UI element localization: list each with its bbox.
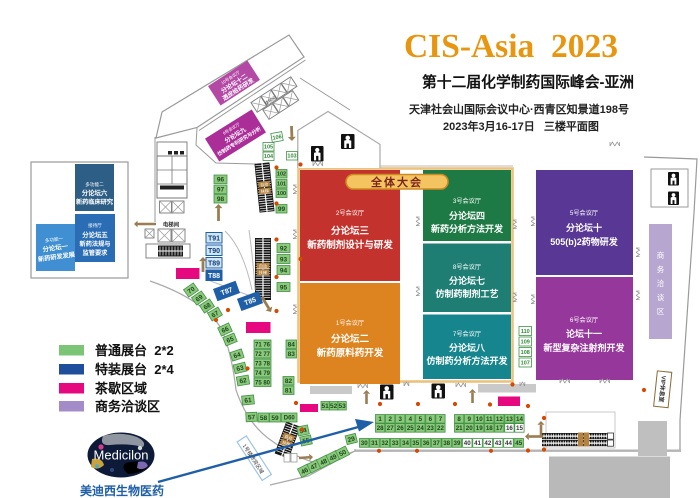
svg-text:2号会议厅: 2号会议厅 (336, 209, 364, 217)
svg-text:25: 25 (407, 425, 414, 432)
svg-text:区: 区 (657, 307, 665, 316)
svg-text:新药法规与: 新药法规与 (80, 240, 111, 248)
svg-text:505(b)2药物研发: 505(b)2药物研发 (550, 236, 619, 247)
svg-text:82: 82 (285, 378, 293, 385)
svg-text:81: 81 (285, 388, 293, 395)
svg-text:51: 51 (322, 403, 330, 410)
svg-text:分论坛七: 分论坛七 (449, 275, 485, 286)
svg-text:72 77: 72 77 (255, 352, 271, 358)
svg-text:7号会议厅: 7号会议厅 (453, 330, 481, 338)
svg-text:83: 83 (288, 351, 296, 358)
svg-text:93: 93 (280, 256, 288, 263)
svg-text:天津社会山国际会议中心·西青区知景道198号: 天津社会山国际会议中心·西青区知景道198号 (409, 102, 629, 116)
svg-text:分论坛四: 分论坛四 (449, 210, 485, 221)
svg-text:13: 13 (506, 416, 513, 423)
svg-text:110: 110 (521, 329, 530, 335)
svg-text:6: 6 (429, 416, 433, 423)
svg-text:新药分析方法开发: 新药分析方法开发 (431, 223, 504, 234)
svg-text:6号会议厅: 6号会议厅 (570, 316, 598, 324)
svg-text:39: 39 (454, 440, 461, 447)
svg-text:自动: 自动 (260, 181, 269, 188)
svg-text:18: 18 (486, 425, 493, 432)
svg-text:分论坛十: 分论坛十 (566, 222, 602, 233)
svg-text:分论坛五: 分论坛五 (82, 230, 108, 239)
svg-text:CIS-Asia 2023: CIS-Asia 2023 (404, 28, 618, 65)
svg-text:109: 109 (521, 339, 530, 345)
svg-text:40: 40 (464, 440, 471, 447)
svg-text:Medicilon: Medicilon (94, 448, 149, 463)
svg-text:24: 24 (417, 425, 424, 432)
svg-text:美迪西生物医药: 美迪西生物医药 (80, 483, 164, 498)
svg-text:22: 22 (437, 425, 444, 432)
svg-text:32: 32 (381, 440, 388, 447)
svg-text:19: 19 (476, 425, 483, 432)
svg-text:8: 8 (457, 416, 461, 423)
svg-text:61: 61 (244, 397, 252, 405)
svg-text:T89: T89 (208, 260, 220, 267)
svg-text:T91: T91 (208, 235, 220, 242)
svg-text:23: 23 (427, 425, 434, 432)
svg-text:5号会议厅: 5号会议厅 (570, 209, 598, 217)
svg-text:96: 96 (217, 177, 225, 184)
svg-text:102: 102 (277, 172, 286, 178)
svg-text:97: 97 (217, 187, 225, 194)
svg-text:43: 43 (495, 440, 502, 447)
svg-text:101: 101 (277, 182, 286, 188)
svg-text:15: 15 (516, 425, 523, 432)
svg-text:20: 20 (466, 425, 473, 432)
svg-text:第十二届化学制药国际峰会-亚洲: 第十二届化学制药国际峰会-亚洲 (422, 73, 634, 91)
svg-text:2023年3月16-17日 三楼平面图: 2023年3月16-17日 三楼平面图 (443, 119, 599, 133)
svg-text:分论坛六: 分论坛六 (82, 188, 108, 197)
svg-text:T88: T88 (208, 273, 220, 280)
svg-text:分论坛二: 分论坛二 (331, 333, 370, 345)
svg-text:特装展台 2*4: 特装展台 2*4 (95, 362, 175, 377)
svg-text:17: 17 (496, 425, 503, 432)
svg-text:98: 98 (217, 196, 225, 203)
svg-text:36: 36 (423, 440, 430, 447)
svg-text:100: 100 (277, 191, 286, 197)
svg-text:58: 58 (260, 415, 268, 422)
svg-text:扶梯: 扶梯 (259, 269, 267, 275)
svg-text:27: 27 (387, 425, 394, 432)
svg-text:茶歇区域: 茶歇区域 (95, 381, 147, 396)
svg-text:59: 59 (271, 415, 279, 422)
svg-text:12: 12 (496, 416, 503, 423)
svg-text:谈: 谈 (657, 292, 665, 302)
svg-text:16: 16 (506, 425, 513, 432)
svg-text:94: 94 (280, 267, 288, 274)
svg-text:21: 21 (456, 425, 463, 432)
svg-text:新型复杂注射剂开发: 新型复杂注射剂开发 (543, 342, 625, 353)
svg-text:多功能二: 多功能二 (85, 181, 104, 188)
svg-text:41: 41 (474, 440, 481, 447)
svg-text:商务洽谈区: 商务洽谈区 (95, 399, 160, 414)
svg-text:监管要求: 监管要求 (83, 249, 109, 257)
svg-text:新药原料药开发: 新药原料药开发 (317, 347, 384, 359)
svg-text:99: 99 (278, 206, 286, 213)
svg-text:11: 11 (486, 416, 493, 423)
svg-text:7: 7 (439, 416, 443, 423)
svg-text:105: 105 (264, 145, 273, 151)
svg-text:商: 商 (657, 250, 665, 260)
svg-text:92: 92 (280, 245, 288, 252)
svg-text:D60: D60 (284, 416, 296, 422)
svg-text:104: 104 (264, 154, 274, 160)
svg-text:普通展台 2*2: 普通展台 2*2 (95, 343, 174, 358)
svg-text:分论坛三: 分论坛三 (331, 225, 370, 237)
svg-text:71 76: 71 76 (255, 342, 271, 348)
svg-text:扶梯: 扶梯 (261, 187, 270, 194)
svg-text:31: 31 (371, 440, 378, 447)
svg-text:53: 53 (339, 403, 347, 410)
svg-text:接待厅: 接待厅 (88, 222, 102, 229)
svg-text:38: 38 (443, 440, 450, 447)
svg-text:107: 107 (521, 360, 530, 366)
svg-text:10: 10 (476, 416, 483, 423)
svg-text:务: 务 (657, 264, 665, 274)
svg-text:新药临床研究: 新药临床研究 (76, 198, 114, 206)
svg-text:45: 45 (515, 440, 522, 447)
svg-text:95: 95 (280, 284, 288, 291)
svg-text:T90: T90 (208, 248, 220, 255)
svg-text:37: 37 (433, 440, 440, 447)
svg-text:3: 3 (399, 416, 403, 423)
svg-text:28: 28 (377, 425, 384, 432)
svg-text:73 78: 73 78 (255, 361, 271, 367)
svg-text:14: 14 (516, 416, 523, 423)
svg-text:84: 84 (288, 342, 296, 349)
svg-text:42: 42 (484, 440, 491, 447)
svg-text:5: 5 (419, 416, 423, 423)
svg-text:自动: 自动 (259, 263, 267, 269)
svg-text:分论坛八: 分论坛八 (449, 342, 486, 353)
svg-text:44: 44 (505, 440, 512, 447)
svg-text:1: 1 (378, 416, 382, 423)
svg-text:仿制药制剂工艺: 仿制药制剂工艺 (435, 288, 498, 299)
svg-text:30: 30 (361, 440, 368, 447)
svg-text:57: 57 (248, 414, 256, 421)
svg-text:75 80: 75 80 (255, 380, 271, 386)
svg-text:2: 2 (388, 416, 392, 423)
svg-text:52: 52 (330, 403, 338, 410)
svg-text:论坛十一: 论坛十一 (566, 328, 602, 339)
svg-text:26: 26 (397, 425, 404, 432)
svg-text:1号会议厅: 1号会议厅 (336, 319, 364, 327)
svg-text:108: 108 (521, 350, 530, 356)
svg-text:新药制剂设计与研发: 新药制剂设计与研发 (307, 239, 393, 251)
svg-text:全体大会: 全体大会 (370, 175, 423, 189)
svg-text:103: 103 (287, 154, 296, 160)
svg-text:9: 9 (467, 416, 471, 423)
svg-text:4: 4 (409, 416, 413, 423)
svg-text:电梯间: 电梯间 (163, 221, 180, 229)
svg-text:33: 33 (392, 440, 399, 447)
svg-text:8号会议厅: 8号会议厅 (453, 263, 481, 271)
svg-text:74 79: 74 79 (255, 371, 271, 377)
svg-text:34: 34 (402, 440, 409, 447)
svg-text:3号会议厅: 3号会议厅 (453, 197, 481, 205)
svg-text:仿制药分析方法开发: 仿制药分析方法开发 (426, 355, 508, 366)
svg-text:洽: 洽 (657, 278, 665, 288)
svg-text:35: 35 (412, 440, 419, 447)
